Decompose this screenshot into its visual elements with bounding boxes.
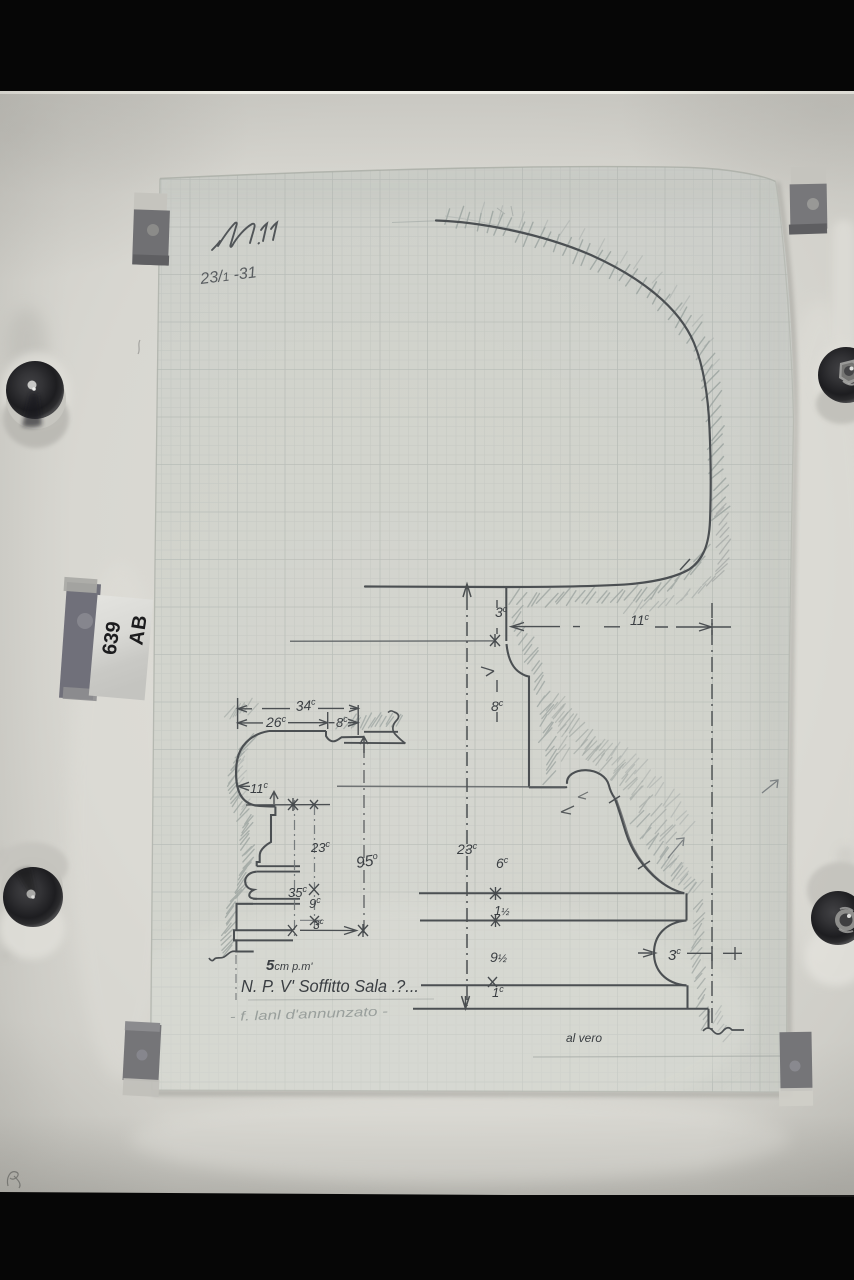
svg-text:al vero: al vero — [566, 1031, 602, 1045]
svg-text:N. P. V' Soffitto Sala .?...: N. P. V' Soffitto Sala .?... — [241, 976, 419, 996]
